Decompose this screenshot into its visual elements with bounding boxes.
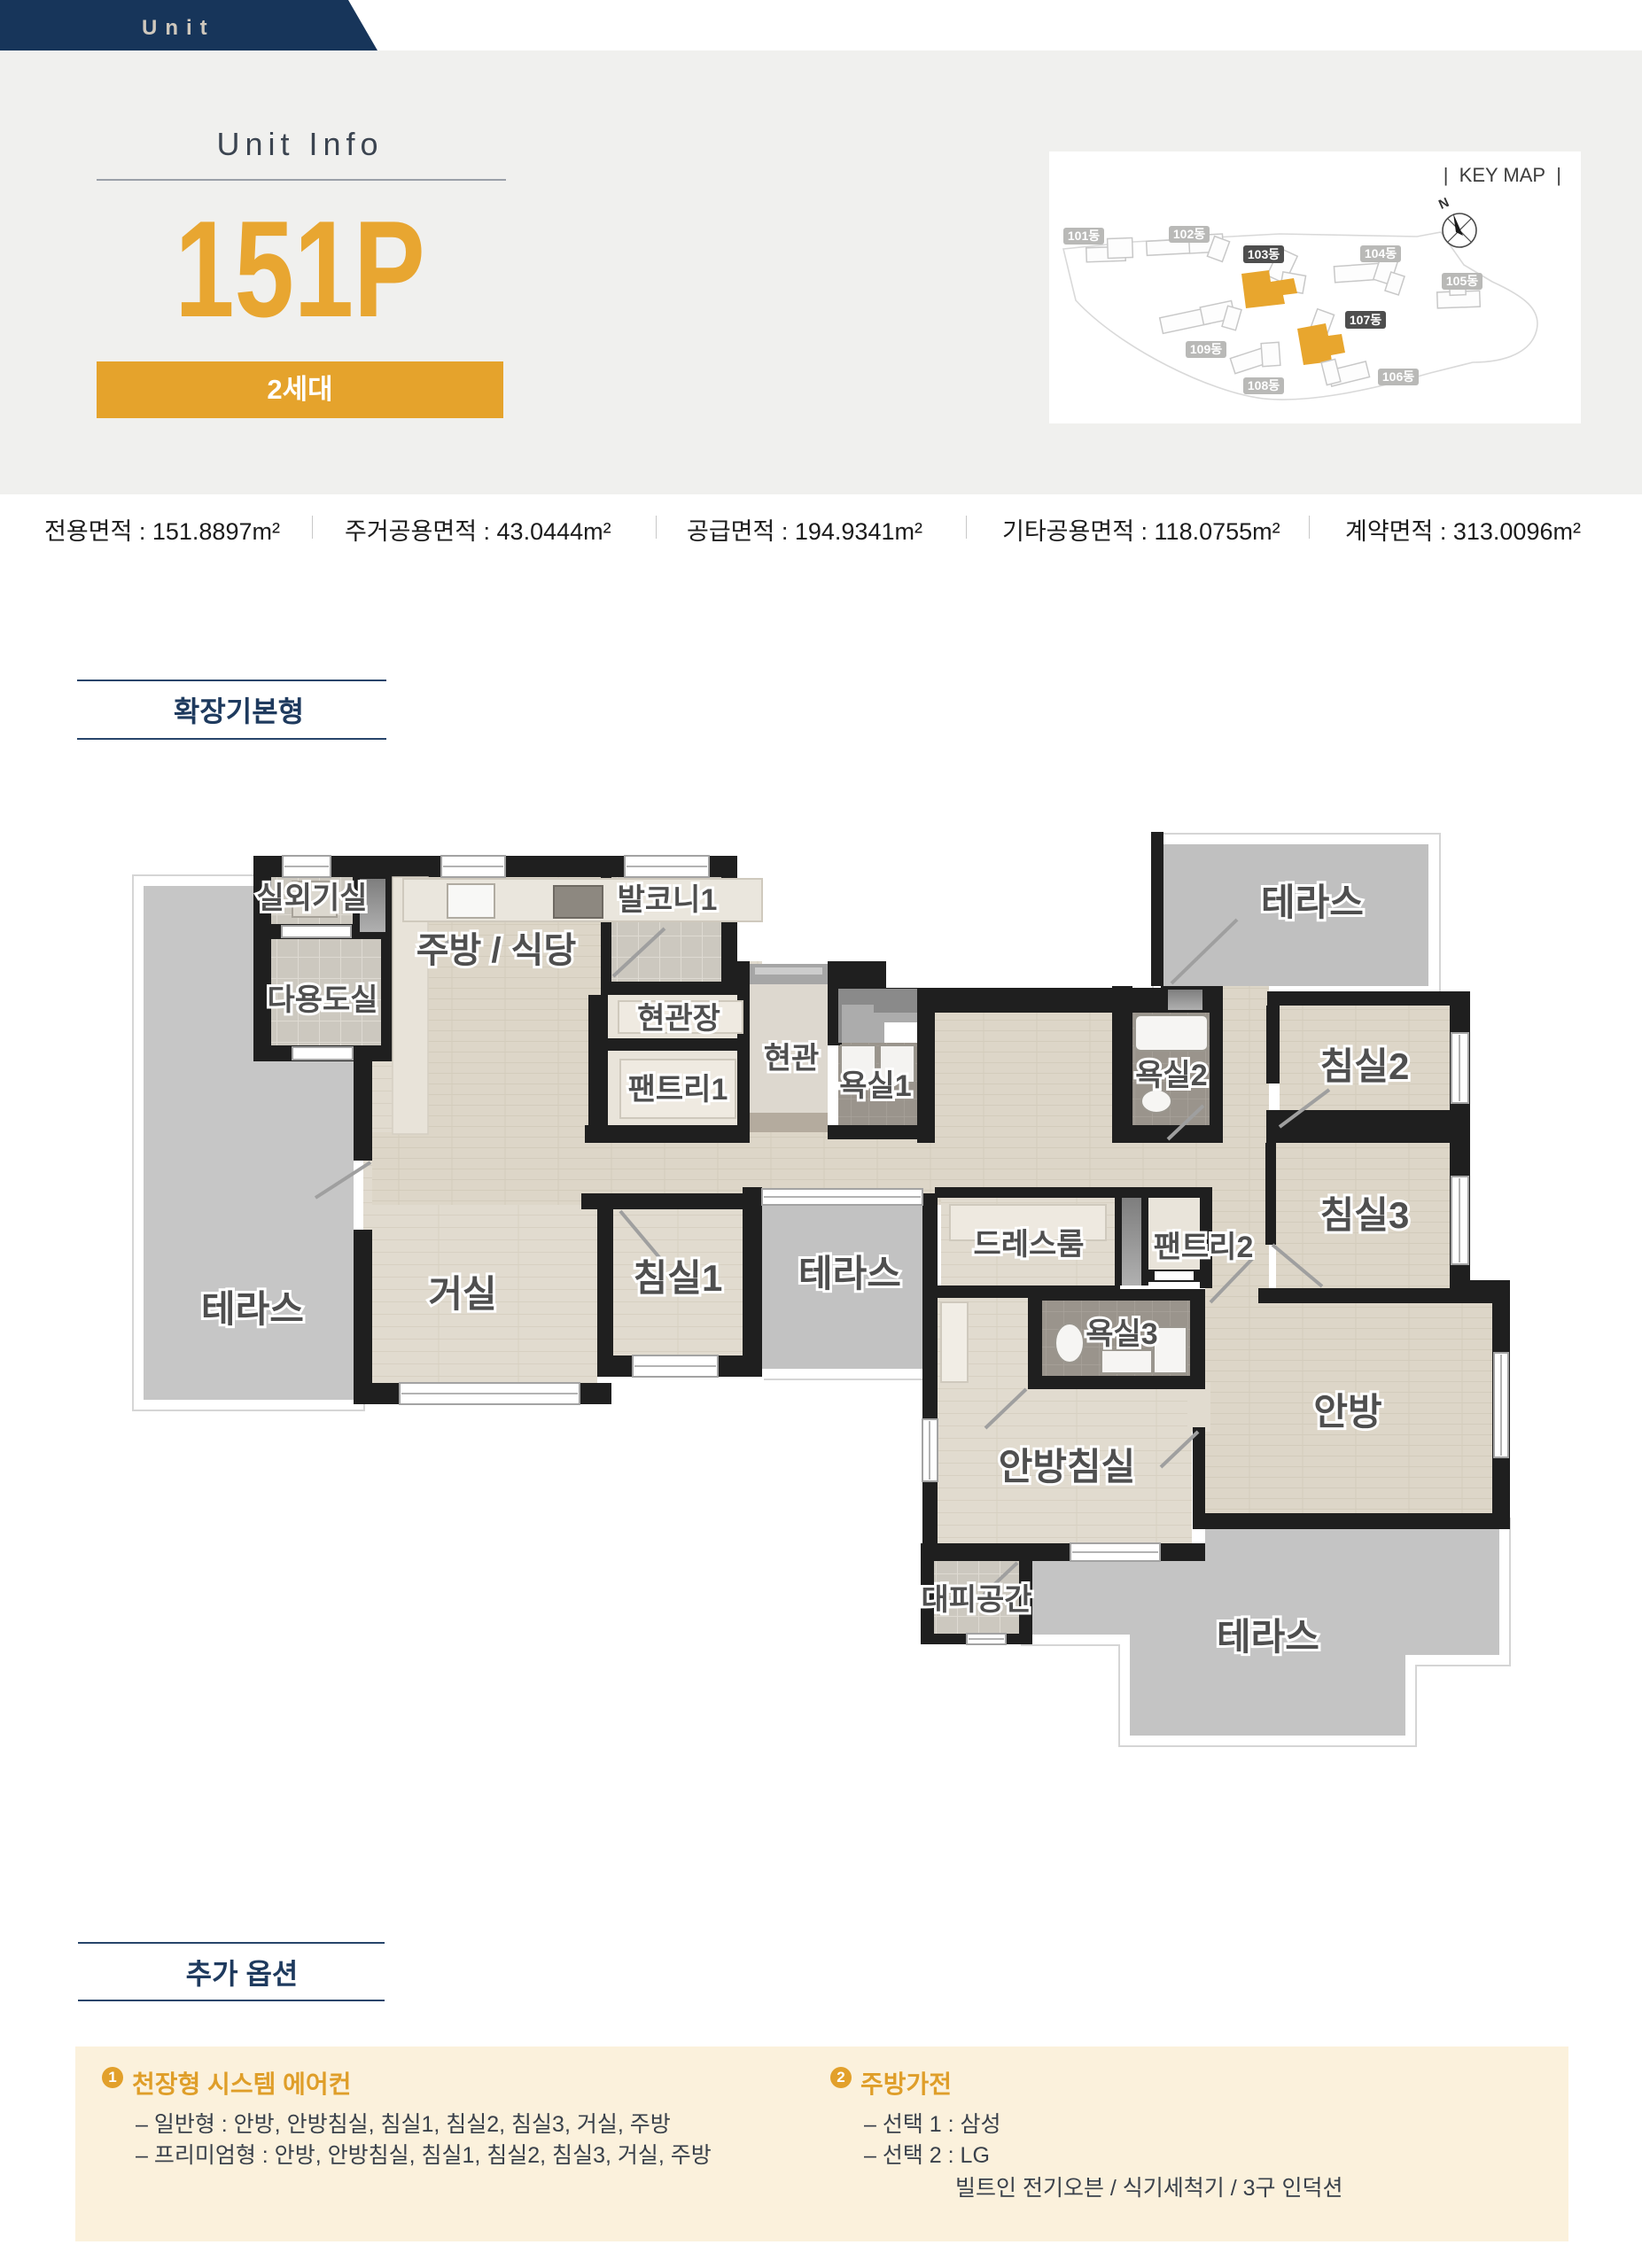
svg-text:팬트리1: 팬트리1 [628, 1073, 728, 1107]
svg-text:욕실1: 욕실1 [839, 1069, 911, 1103]
svg-text:침실2: 침실2 [1320, 1045, 1410, 1087]
svg-text:침실3: 침실3 [1320, 1194, 1410, 1236]
svg-text:드레스룸: 드레스룸 [973, 1228, 1084, 1262]
svg-text:안방침실: 안방침실 [999, 1446, 1136, 1487]
svg-text:테라스: 테라스 [1217, 1616, 1319, 1658]
svg-text:테라스: 테라스 [798, 1253, 901, 1294]
svg-text:팬트리2: 팬트리2 [1154, 1231, 1254, 1264]
svg-text:발코니1: 발코니1 [618, 883, 718, 917]
svg-text:대피공간: 대피공간 [921, 1583, 1031, 1617]
svg-text:현관: 현관 [764, 1042, 820, 1076]
svg-text:다용도실: 다용도실 [267, 983, 377, 1017]
svg-text:테라스: 테라스 [1261, 882, 1364, 923]
svg-text:침실1: 침실1 [634, 1257, 723, 1299]
svg-text:욕실2: 욕실2 [1135, 1059, 1207, 1092]
svg-text:주방 / 식당: 주방 / 식당 [416, 931, 577, 970]
svg-text:현관장: 현관장 [637, 1002, 720, 1036]
svg-text:안방: 안방 [1313, 1391, 1381, 1433]
svg-text:테라스: 테라스 [201, 1288, 304, 1330]
svg-text:거실: 거실 [428, 1273, 496, 1315]
svg-text:욕실3: 욕실3 [1086, 1317, 1157, 1351]
svg-text:실외기실: 실외기실 [256, 882, 367, 915]
